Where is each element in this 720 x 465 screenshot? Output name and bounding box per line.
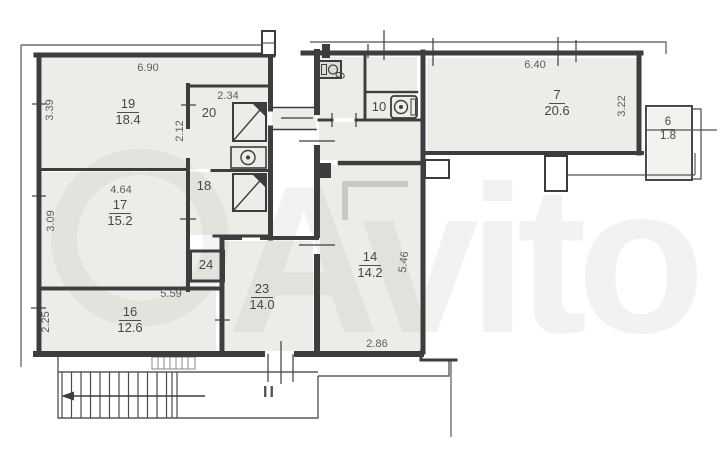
dim-room16-depth: 2.25 bbox=[39, 302, 53, 342]
room-7-area: 20.6 bbox=[535, 104, 579, 119]
room-19-number: 19 bbox=[117, 97, 139, 113]
room-24-label: 24 bbox=[192, 258, 220, 273]
room-16-area: 12.6 bbox=[108, 321, 152, 336]
watermark-text: Avito bbox=[228, 142, 698, 377]
room-24-number: 24 bbox=[199, 258, 213, 273]
dim-room20-depth: 2.12 bbox=[173, 111, 187, 151]
dim-room7-width: 6.40 bbox=[515, 58, 555, 72]
dim-room14-width: 2.86 bbox=[357, 337, 397, 351]
section-mark: II bbox=[263, 384, 276, 402]
staircase-hatch-icon bbox=[62, 372, 177, 418]
room-6-area: 1.8 bbox=[653, 130, 683, 143]
room-17-label: 17 15.2 bbox=[98, 198, 142, 228]
room-23-number: 23 bbox=[251, 282, 273, 298]
floor-plan-page: Avito bbox=[0, 0, 720, 465]
room-20-number: 20 bbox=[202, 106, 216, 121]
stair-direction-arrow-icon bbox=[61, 392, 205, 401]
dim-room17-depth: 3.09 bbox=[44, 201, 58, 241]
room-19-label: 19 18.4 bbox=[106, 97, 150, 127]
dim-room19-depth: 3.39 bbox=[43, 90, 57, 130]
room-6-number: 6 bbox=[661, 116, 675, 130]
dim-room19-width: 6.90 bbox=[128, 61, 168, 75]
room-14-label: 14 14.2 bbox=[348, 250, 392, 280]
room-18-number: 18 bbox=[197, 179, 211, 194]
room-23-label: 23 14.0 bbox=[240, 282, 284, 312]
room-16-number: 16 bbox=[119, 305, 141, 321]
room-23-area: 14.0 bbox=[240, 298, 284, 313]
dim-room20-width: 2.34 bbox=[208, 89, 248, 103]
room-18-label: 18 bbox=[190, 179, 218, 194]
floor-plan-drawing: Avito bbox=[0, 0, 720, 465]
room-7-number: 7 bbox=[549, 88, 564, 104]
room-14-number: 14 bbox=[359, 250, 381, 266]
room-19-area: 18.4 bbox=[106, 113, 150, 128]
dim-room7-depth: 3.22 bbox=[615, 86, 629, 126]
room-20-label: 20 bbox=[195, 106, 223, 121]
room-6-label: 6 1.8 bbox=[653, 116, 683, 143]
dim-room16-width: 5.59 bbox=[151, 287, 191, 301]
dim-room17-width: 4.64 bbox=[101, 183, 141, 197]
room-17-number: 17 bbox=[109, 198, 131, 214]
room-17-area: 15.2 bbox=[98, 214, 142, 229]
room-9-number: 9 bbox=[333, 70, 349, 81]
room-16-label: 16 12.6 bbox=[108, 305, 152, 335]
room-10-label: 10 bbox=[368, 100, 390, 115]
room-14-area: 14.2 bbox=[348, 266, 392, 281]
threshold-mat-icon bbox=[152, 357, 195, 369]
room-7-label: 7 20.6 bbox=[535, 88, 579, 118]
room-10-number: 10 bbox=[372, 100, 386, 115]
